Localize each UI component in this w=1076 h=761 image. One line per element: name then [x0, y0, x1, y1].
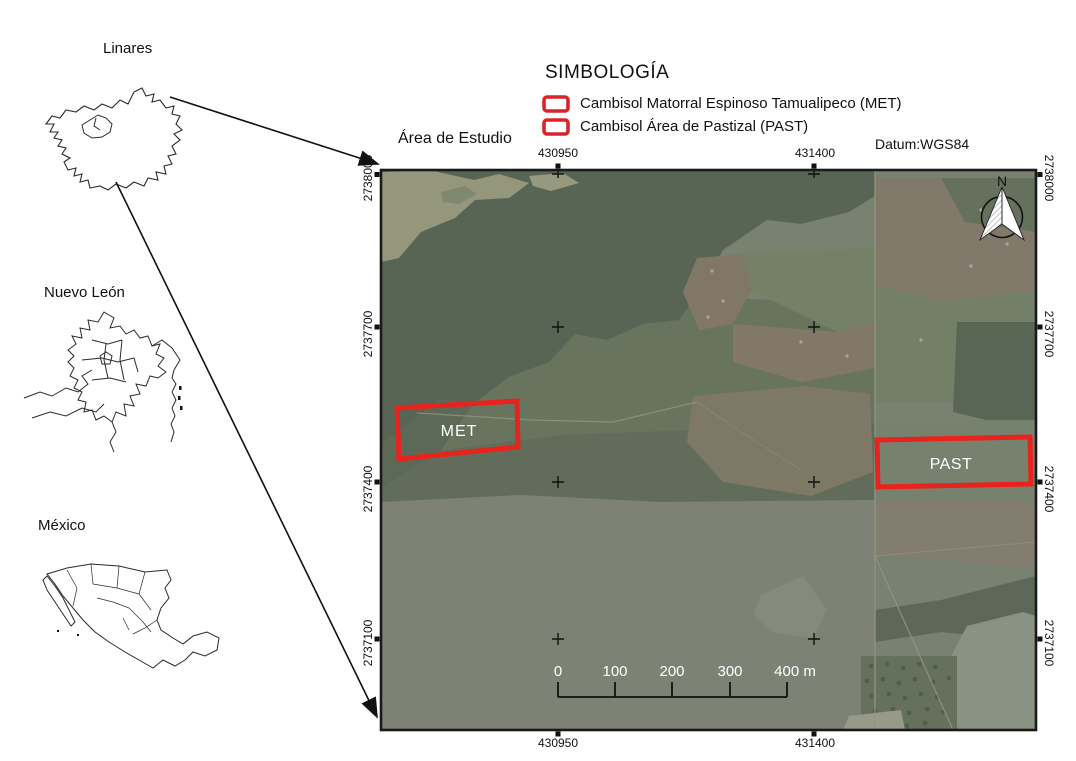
northing-left-2737400: 2737400 [361, 459, 375, 519]
legend-item-past-label: Cambisol Área de Pastizal (PAST) [580, 118, 808, 135]
scale-label-0: 0 [554, 663, 562, 680]
mexico-boundaries [43, 564, 219, 668]
northing-right-2737400: 2737400 [1042, 459, 1056, 519]
scale-label-400m: 400 m [774, 663, 816, 680]
nuevo-leon-inset-label: Nuevo León [44, 284, 125, 301]
mexico-small-islands [57, 630, 79, 636]
nuevo-leon-boundaries [24, 312, 180, 452]
scale-label-100: 100 [602, 663, 627, 680]
met-legend-swatch-icon [541, 94, 571, 114]
easting-top-431400: 431400 [785, 146, 845, 160]
northing-right-2738000: 2738000 [1042, 148, 1056, 208]
legend: Cambisol Matorral Espinoso Tamualipeco (… [541, 93, 902, 139]
mexico-outline-map [33, 558, 238, 688]
linares-boundary [46, 88, 182, 190]
past-legend-swatch-icon [541, 117, 571, 137]
datum-label: Datum:WGS84 [875, 136, 969, 152]
northing-right-2737100: 2737100 [1042, 613, 1056, 673]
easting-bottom-431400: 431400 [785, 736, 845, 750]
legend-item-past: Cambisol Área de Pastizal (PAST) [541, 116, 902, 137]
mexico-inset-label: México [38, 517, 86, 534]
scale-label-200: 200 [659, 663, 684, 680]
legend-title: SIMBOLOGÍA [545, 62, 669, 84]
map-title: Área de Estudio [398, 130, 512, 148]
past-zone-label: PAST [930, 456, 973, 473]
northing-left-2737700: 2737700 [361, 304, 375, 364]
north-arrow-label: N [997, 173, 1007, 189]
easting-bottom-430950: 430950 [528, 736, 588, 750]
linares-inset-label: Linares [103, 40, 152, 57]
easting-top-430950: 430950 [528, 146, 588, 160]
northing-left-2737100: 2737100 [361, 613, 375, 673]
satellite-basemap: MET PAST 0 100 200 300 400 m N [381, 170, 1036, 730]
met-zone-label: MET [441, 423, 478, 440]
northing-right-2737700: 2737700 [1042, 304, 1056, 364]
nuevo-leon-outline-map [22, 300, 212, 460]
legend-item-met: Cambisol Matorral Espinoso Tamualipeco (… [541, 93, 902, 114]
northing-left-2738000: 2738000 [361, 148, 375, 208]
linares-outline-map [38, 82, 238, 197]
linares-inner-locality-boundary [82, 115, 112, 138]
nuevo-leon-coast-islands [178, 386, 183, 410]
scale-label-300: 300 [717, 663, 742, 680]
legend-item-met-label: Cambisol Matorral Espinoso Tamualipeco (… [580, 95, 902, 112]
